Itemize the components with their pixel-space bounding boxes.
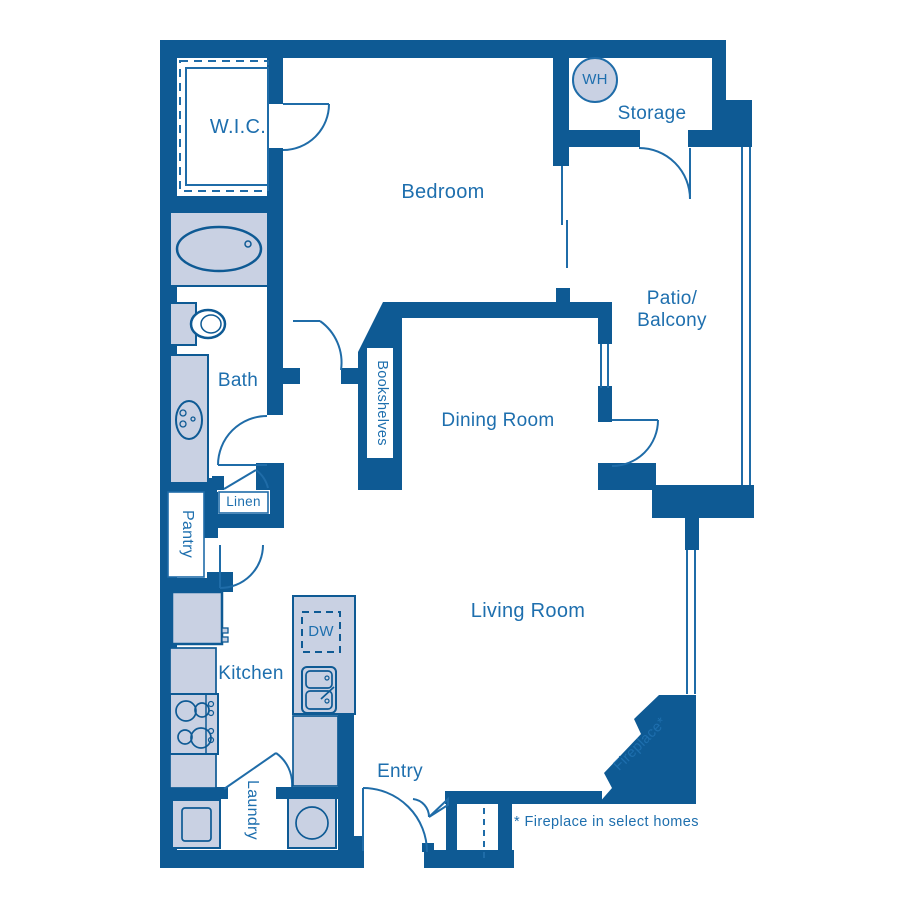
walls	[160, 40, 754, 868]
label-patio-balcony: Patio/ Balcony	[612, 288, 732, 332]
wall-storage-right	[712, 40, 726, 104]
label-wic: W.I.C.	[203, 116, 273, 139]
label-pantry: Pantry	[176, 494, 196, 574]
floorplan-canvas: W.I.C. Bedroom Storage WH Patio/ Balcony…	[0, 0, 900, 900]
bath-sink	[176, 401, 202, 439]
wic-door	[283, 104, 329, 150]
wall-patio-bottom	[652, 485, 754, 518]
label-bedroom: Bedroom	[383, 181, 503, 204]
wall-entry-left-jamb	[350, 836, 364, 852]
wall-wic-right-upper	[267, 40, 283, 104]
label-patio-line1: Patio/	[612, 288, 732, 310]
wall-entry-right-jamb	[422, 843, 434, 852]
floorplan-graphics	[0, 0, 900, 900]
label-water-heater: WH	[575, 71, 615, 88]
storage-door	[639, 148, 690, 199]
toilet-bowl	[191, 310, 225, 338]
wall-dining-right-2	[598, 386, 612, 422]
wall-closet-inner-bar	[446, 804, 457, 862]
wall-storage-bottom-right	[688, 130, 752, 147]
label-bath: Bath	[198, 370, 278, 392]
patio-door	[612, 420, 658, 466]
bath-door	[218, 416, 267, 465]
label-linen: Linen	[219, 494, 268, 510]
label-dishwasher: DW	[301, 623, 341, 640]
wall-top	[160, 40, 726, 58]
fixtures	[168, 58, 617, 848]
entry-door	[363, 788, 427, 852]
wall-patio-stub	[556, 288, 570, 304]
bathtub	[177, 227, 261, 271]
wall-storage-bottom-left	[565, 130, 640, 147]
bedroom-door	[293, 321, 342, 370]
wall-dining-right-1	[598, 302, 612, 344]
label-bookshelves: Bookshelves	[370, 348, 390, 458]
wall-living-bottom	[445, 791, 602, 804]
wall-linen-right-block	[256, 463, 284, 490]
wall-bottom-left	[160, 850, 364, 868]
footnote: * Fireplace in select homes	[514, 814, 744, 831]
refrigerator	[172, 592, 222, 644]
wall-storage-left	[553, 40, 569, 166]
wall-wic-bath-divider	[177, 196, 278, 212]
label-storage: Storage	[602, 103, 702, 125]
island-cabinet	[293, 716, 338, 786]
label-laundry: Laundry	[241, 765, 261, 855]
wall-dining-top	[383, 302, 612, 318]
wall-dining-se	[598, 463, 656, 490]
wall-bath-right	[267, 212, 283, 370]
wall-pantry-right	[204, 492, 218, 538]
label-dining-room: Dining Room	[428, 410, 568, 432]
label-patio-line2: Balcony	[612, 310, 732, 332]
closet-bifold-door	[413, 799, 448, 817]
label-living-room: Living Room	[458, 600, 598, 623]
wall-living-right-upper	[685, 518, 699, 550]
wall-bottom-mid	[424, 850, 514, 868]
label-entry: Entry	[350, 761, 450, 783]
label-kitchen: Kitchen	[191, 663, 311, 685]
